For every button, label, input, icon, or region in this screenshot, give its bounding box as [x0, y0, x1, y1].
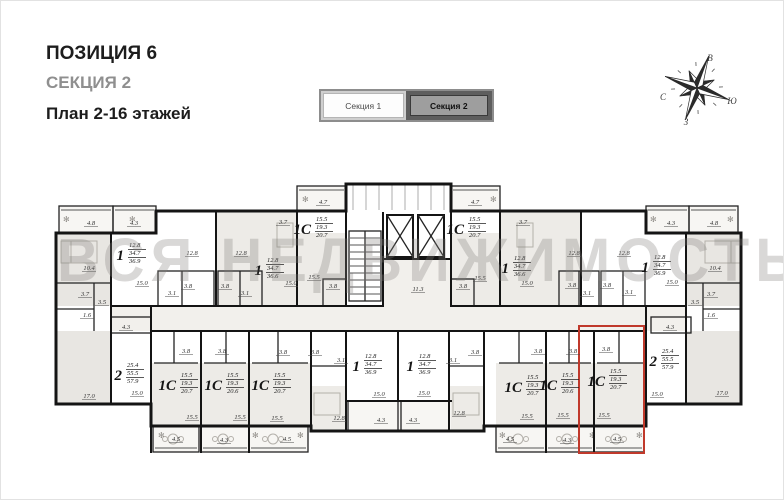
staircase [349, 231, 381, 301]
svg-text:3.7: 3.7 [278, 219, 288, 226]
room-area-label: 11.3 [411, 286, 425, 293]
svg-text:15.0: 15.0 [131, 390, 143, 397]
svg-text:3.1: 3.1 [582, 290, 591, 297]
room-area-label: 15.5 [597, 412, 611, 419]
svg-text:12.8: 12.8 [568, 250, 580, 257]
svg-text:36.6: 36.6 [266, 273, 279, 280]
svg-text:15.5: 15.5 [521, 413, 533, 420]
svg-text:✻: ✻ [499, 431, 506, 440]
svg-text:34.7: 34.7 [513, 263, 526, 270]
svg-text:12.8: 12.8 [618, 250, 630, 257]
svg-text:15.0: 15.0 [285, 280, 297, 287]
compass-cardinal-points [653, 44, 740, 131]
compass-north-label: С [660, 92, 667, 102]
room-area-label: 15.0 [520, 280, 534, 287]
svg-text:36.9: 36.9 [128, 258, 141, 265]
room-area-label: 3.1 [580, 290, 594, 297]
apartment-label: 112.834.736.9 [642, 254, 672, 277]
room-area-label: 3.8 [276, 349, 290, 356]
room-area-label: 15.5 [556, 412, 570, 419]
svg-text:2: 2 [114, 368, 123, 384]
svg-text:19.3: 19.3 [274, 380, 286, 387]
svg-text:36.6: 36.6 [513, 271, 526, 278]
svg-text:15.5: 15.5 [308, 274, 320, 281]
svg-text:12.8: 12.8 [654, 254, 666, 261]
svg-text:3.8: 3.8 [328, 283, 338, 290]
room-area-label: 12.8 [617, 250, 631, 257]
svg-text:12.8: 12.8 [267, 257, 279, 264]
svg-text:1С: 1С [204, 378, 223, 394]
svg-text:3.1: 3.1 [448, 357, 457, 364]
svg-text:1С: 1С [587, 374, 606, 390]
room-area-label: 3.8 [308, 349, 322, 356]
svg-text:20.7: 20.7 [610, 384, 622, 391]
svg-text:25.4: 25.4 [662, 348, 674, 355]
svg-text:3.8: 3.8 [220, 283, 230, 290]
svg-text:4.8: 4.8 [87, 220, 96, 227]
apartment-label: 225.455.557.9 [114, 362, 145, 385]
room-area-label: 3.8 [215, 348, 229, 355]
room-area-label: 3.8 [566, 348, 580, 355]
page: ПОЗИЦИЯ 6 СЕКЦИЯ 2 План 2-16 этажей Секц… [0, 0, 784, 500]
svg-text:1: 1 [353, 359, 361, 375]
svg-text:1: 1 [255, 263, 263, 279]
room-area-label: 17.0 [715, 390, 729, 397]
svg-text:12.8: 12.8 [453, 410, 465, 417]
svg-text:12.8: 12.8 [419, 353, 431, 360]
svg-text:34.7: 34.7 [653, 262, 666, 269]
svg-text:3.8: 3.8 [533, 348, 543, 355]
svg-text:1: 1 [502, 261, 510, 277]
room-area-label: 15.5 [473, 275, 487, 282]
svg-text:4.3: 4.3 [377, 417, 386, 424]
svg-text:4.7: 4.7 [319, 199, 328, 206]
room-area-label: 15.5 [307, 274, 321, 281]
svg-text:3.7: 3.7 [518, 219, 528, 226]
svg-text:11.3: 11.3 [413, 286, 425, 293]
svg-text:1С: 1С [539, 378, 558, 394]
apartment-label: 225.455.557.9 [649, 348, 680, 371]
svg-text:19.3: 19.3 [562, 380, 574, 387]
room-area-label: 3.8 [599, 346, 613, 353]
svg-text:55.5: 55.5 [662, 356, 674, 363]
svg-text:12.8: 12.8 [365, 353, 377, 360]
svg-text:✻: ✻ [297, 431, 304, 440]
svg-text:55.5: 55.5 [127, 370, 139, 377]
svg-text:17.0: 17.0 [83, 393, 95, 400]
room-area-label: 3.1 [165, 290, 179, 297]
room-area-label: 15.5 [185, 414, 199, 421]
svg-text:19.3: 19.3 [227, 380, 239, 387]
svg-text:12.8: 12.8 [235, 250, 247, 257]
compass-south-label: Ю [726, 96, 737, 106]
svg-text:3.8: 3.8 [602, 282, 612, 289]
svg-text:1С: 1С [251, 378, 270, 394]
svg-text:4.3: 4.3 [130, 220, 139, 227]
svg-text:3.8: 3.8 [217, 348, 227, 355]
room-area-label: 15.0 [135, 280, 149, 287]
svg-text:3.8: 3.8 [601, 346, 611, 353]
svg-text:15.5: 15.5 [181, 372, 193, 379]
svg-text:✻: ✻ [650, 215, 657, 224]
svg-text:36.9: 36.9 [418, 369, 431, 376]
svg-text:3.8: 3.8 [568, 348, 578, 355]
svg-text:10.4: 10.4 [709, 265, 721, 272]
svg-text:1: 1 [642, 260, 650, 276]
svg-text:19.3: 19.3 [610, 376, 622, 383]
svg-text:19.3: 19.3 [316, 224, 328, 231]
svg-text:15.0: 15.0 [651, 391, 663, 398]
svg-text:15.5: 15.5 [227, 372, 239, 379]
room-area-label: 17.0 [82, 393, 96, 400]
apartment-label: 112.834.736.9 [407, 353, 437, 376]
apartment-label: 112.834.736.9 [117, 242, 147, 265]
room-area-label: 3.8 [468, 349, 482, 356]
svg-text:1: 1 [117, 248, 125, 264]
svg-text:1С: 1С [504, 380, 523, 396]
svg-text:34.7: 34.7 [128, 250, 141, 257]
svg-text:15.0: 15.0 [136, 280, 148, 287]
svg-text:4.3: 4.3 [220, 437, 229, 444]
svg-text:15.5: 15.5 [469, 216, 481, 223]
room-area-label: 15.5 [270, 415, 284, 422]
svg-text:15.0: 15.0 [521, 280, 533, 287]
svg-text:4.5: 4.5 [172, 436, 181, 443]
svg-text:1.6: 1.6 [83, 312, 92, 319]
svg-text:20.6: 20.6 [227, 388, 239, 395]
svg-text:57.9: 57.9 [127, 378, 139, 385]
room-area-label: 12.8 [185, 250, 199, 257]
svg-text:3.8: 3.8 [458, 283, 468, 290]
svg-text:20.7: 20.7 [527, 390, 539, 397]
room-area-label: 15.0 [417, 390, 431, 397]
svg-text:✻: ✻ [490, 195, 497, 204]
svg-text:3.7: 3.7 [706, 291, 716, 298]
svg-text:4.3: 4.3 [563, 437, 572, 444]
svg-text:57.9: 57.9 [662, 364, 674, 371]
svg-text:20.6: 20.6 [562, 388, 574, 395]
svg-text:✻: ✻ [252, 431, 259, 440]
svg-text:25.4: 25.4 [127, 362, 139, 369]
svg-text:19.3: 19.3 [527, 382, 539, 389]
svg-text:34.7: 34.7 [418, 361, 431, 368]
room-area-label: 15.0 [130, 390, 144, 397]
room-area-label: 12.8 [234, 250, 248, 257]
svg-text:3.8: 3.8 [278, 349, 288, 356]
svg-text:20.7: 20.7 [274, 388, 286, 395]
room-area-label: 15.5 [520, 413, 534, 420]
svg-text:✻: ✻ [302, 195, 309, 204]
svg-text:3.8: 3.8 [470, 349, 480, 356]
svg-text:36.9: 36.9 [653, 270, 666, 277]
svg-text:4.3: 4.3 [666, 324, 675, 331]
room-area-label: 15.0 [284, 280, 298, 287]
svg-text:15.5: 15.5 [274, 372, 286, 379]
room-area-label: 1.6 [80, 312, 94, 319]
svg-text:12.8: 12.8 [514, 255, 526, 262]
svg-text:15.0: 15.0 [666, 279, 678, 286]
svg-text:4.3: 4.3 [667, 220, 676, 227]
stair-core-roof [353, 185, 444, 210]
apartment-label: 112.834.736.9 [353, 353, 383, 376]
svg-text:3.8: 3.8 [181, 348, 191, 355]
svg-text:✻: ✻ [63, 215, 70, 224]
svg-text:34.7: 34.7 [364, 361, 377, 368]
svg-text:2: 2 [649, 354, 658, 370]
room-area-label: 12.8 [452, 410, 466, 417]
svg-text:15.5: 15.5 [186, 414, 198, 421]
svg-text:15.5: 15.5 [474, 275, 486, 282]
svg-text:4.5: 4.5 [506, 436, 515, 443]
room-area-label: 12.8 [567, 250, 581, 257]
svg-text:17.0: 17.0 [716, 390, 728, 397]
svg-text:4.5: 4.5 [613, 436, 622, 443]
svg-text:3.1: 3.1 [336, 357, 345, 364]
room-area-label: 3.8 [600, 282, 614, 289]
compass-rose: В С Ю З [641, 19, 761, 144]
svg-text:4.8: 4.8 [710, 220, 719, 227]
svg-text:3.1: 3.1 [240, 290, 249, 297]
svg-text:1С: 1С [158, 378, 177, 394]
svg-text:36.9: 36.9 [364, 369, 377, 376]
room-area-label: 1.6 [704, 312, 718, 319]
svg-text:15.5: 15.5 [234, 414, 246, 421]
svg-text:15.5: 15.5 [271, 415, 283, 422]
room-area-label: 12.8 [332, 415, 346, 422]
room-area-label: 3.8 [179, 348, 193, 355]
room-area-label: 15.0 [665, 279, 679, 286]
svg-text:15.5: 15.5 [598, 412, 610, 419]
room-area-label: 15.5 [233, 414, 247, 421]
room-area-label: 3.1 [446, 357, 460, 364]
svg-text:3.5: 3.5 [690, 299, 700, 306]
svg-text:1.6: 1.6 [707, 312, 716, 319]
svg-text:1: 1 [407, 359, 415, 375]
room-area-label: 15.0 [372, 391, 386, 398]
svg-text:15.5: 15.5 [527, 374, 539, 381]
svg-text:3.1: 3.1 [624, 289, 633, 296]
room-area-label: 3.1 [622, 289, 636, 296]
svg-text:3.8: 3.8 [183, 283, 193, 290]
room-area-label: 3.8 [181, 283, 195, 290]
svg-text:20.7: 20.7 [181, 388, 193, 395]
room-area-label: 10.4 [82, 265, 96, 272]
svg-text:1С: 1С [293, 222, 312, 238]
svg-text:15.5: 15.5 [610, 368, 622, 375]
svg-text:4.5: 4.5 [283, 436, 292, 443]
svg-text:19.3: 19.3 [469, 224, 481, 231]
svg-text:19.3: 19.3 [181, 380, 193, 387]
svg-text:✻: ✻ [727, 215, 734, 224]
svg-text:15.5: 15.5 [316, 216, 328, 223]
elevator-shafts [387, 215, 444, 257]
svg-text:4.3: 4.3 [122, 324, 131, 331]
svg-text:3.7: 3.7 [80, 291, 90, 298]
svg-text:34.7: 34.7 [266, 265, 279, 272]
compass-west-label: З [684, 117, 689, 127]
room-area-label: 3.8 [531, 348, 545, 355]
svg-text:3.8: 3.8 [310, 349, 320, 356]
svg-text:4.3: 4.3 [409, 417, 418, 424]
svg-text:12.8: 12.8 [333, 415, 345, 422]
svg-text:15.0: 15.0 [418, 390, 430, 397]
svg-text:3.8: 3.8 [567, 282, 577, 289]
svg-text:15.5: 15.5 [562, 372, 574, 379]
svg-text:12.8: 12.8 [186, 250, 198, 257]
svg-text:15.0: 15.0 [373, 391, 385, 398]
compass-east-label: В [707, 53, 713, 63]
room-area-label: 15.0 [650, 391, 664, 398]
svg-text:4.7: 4.7 [471, 199, 480, 206]
svg-text:1С: 1С [446, 222, 465, 238]
svg-text:10.4: 10.4 [83, 265, 95, 272]
svg-text:3.1: 3.1 [167, 290, 176, 297]
svg-text:15.5: 15.5 [557, 412, 569, 419]
svg-text:20.7: 20.7 [469, 232, 481, 239]
svg-text:20.7: 20.7 [316, 232, 328, 239]
svg-text:✻: ✻ [636, 431, 643, 440]
room-area-label: 10.4 [708, 265, 722, 272]
svg-text:3.5: 3.5 [97, 299, 107, 306]
svg-text:12.8: 12.8 [129, 242, 141, 249]
svg-text:✻: ✻ [158, 431, 165, 440]
